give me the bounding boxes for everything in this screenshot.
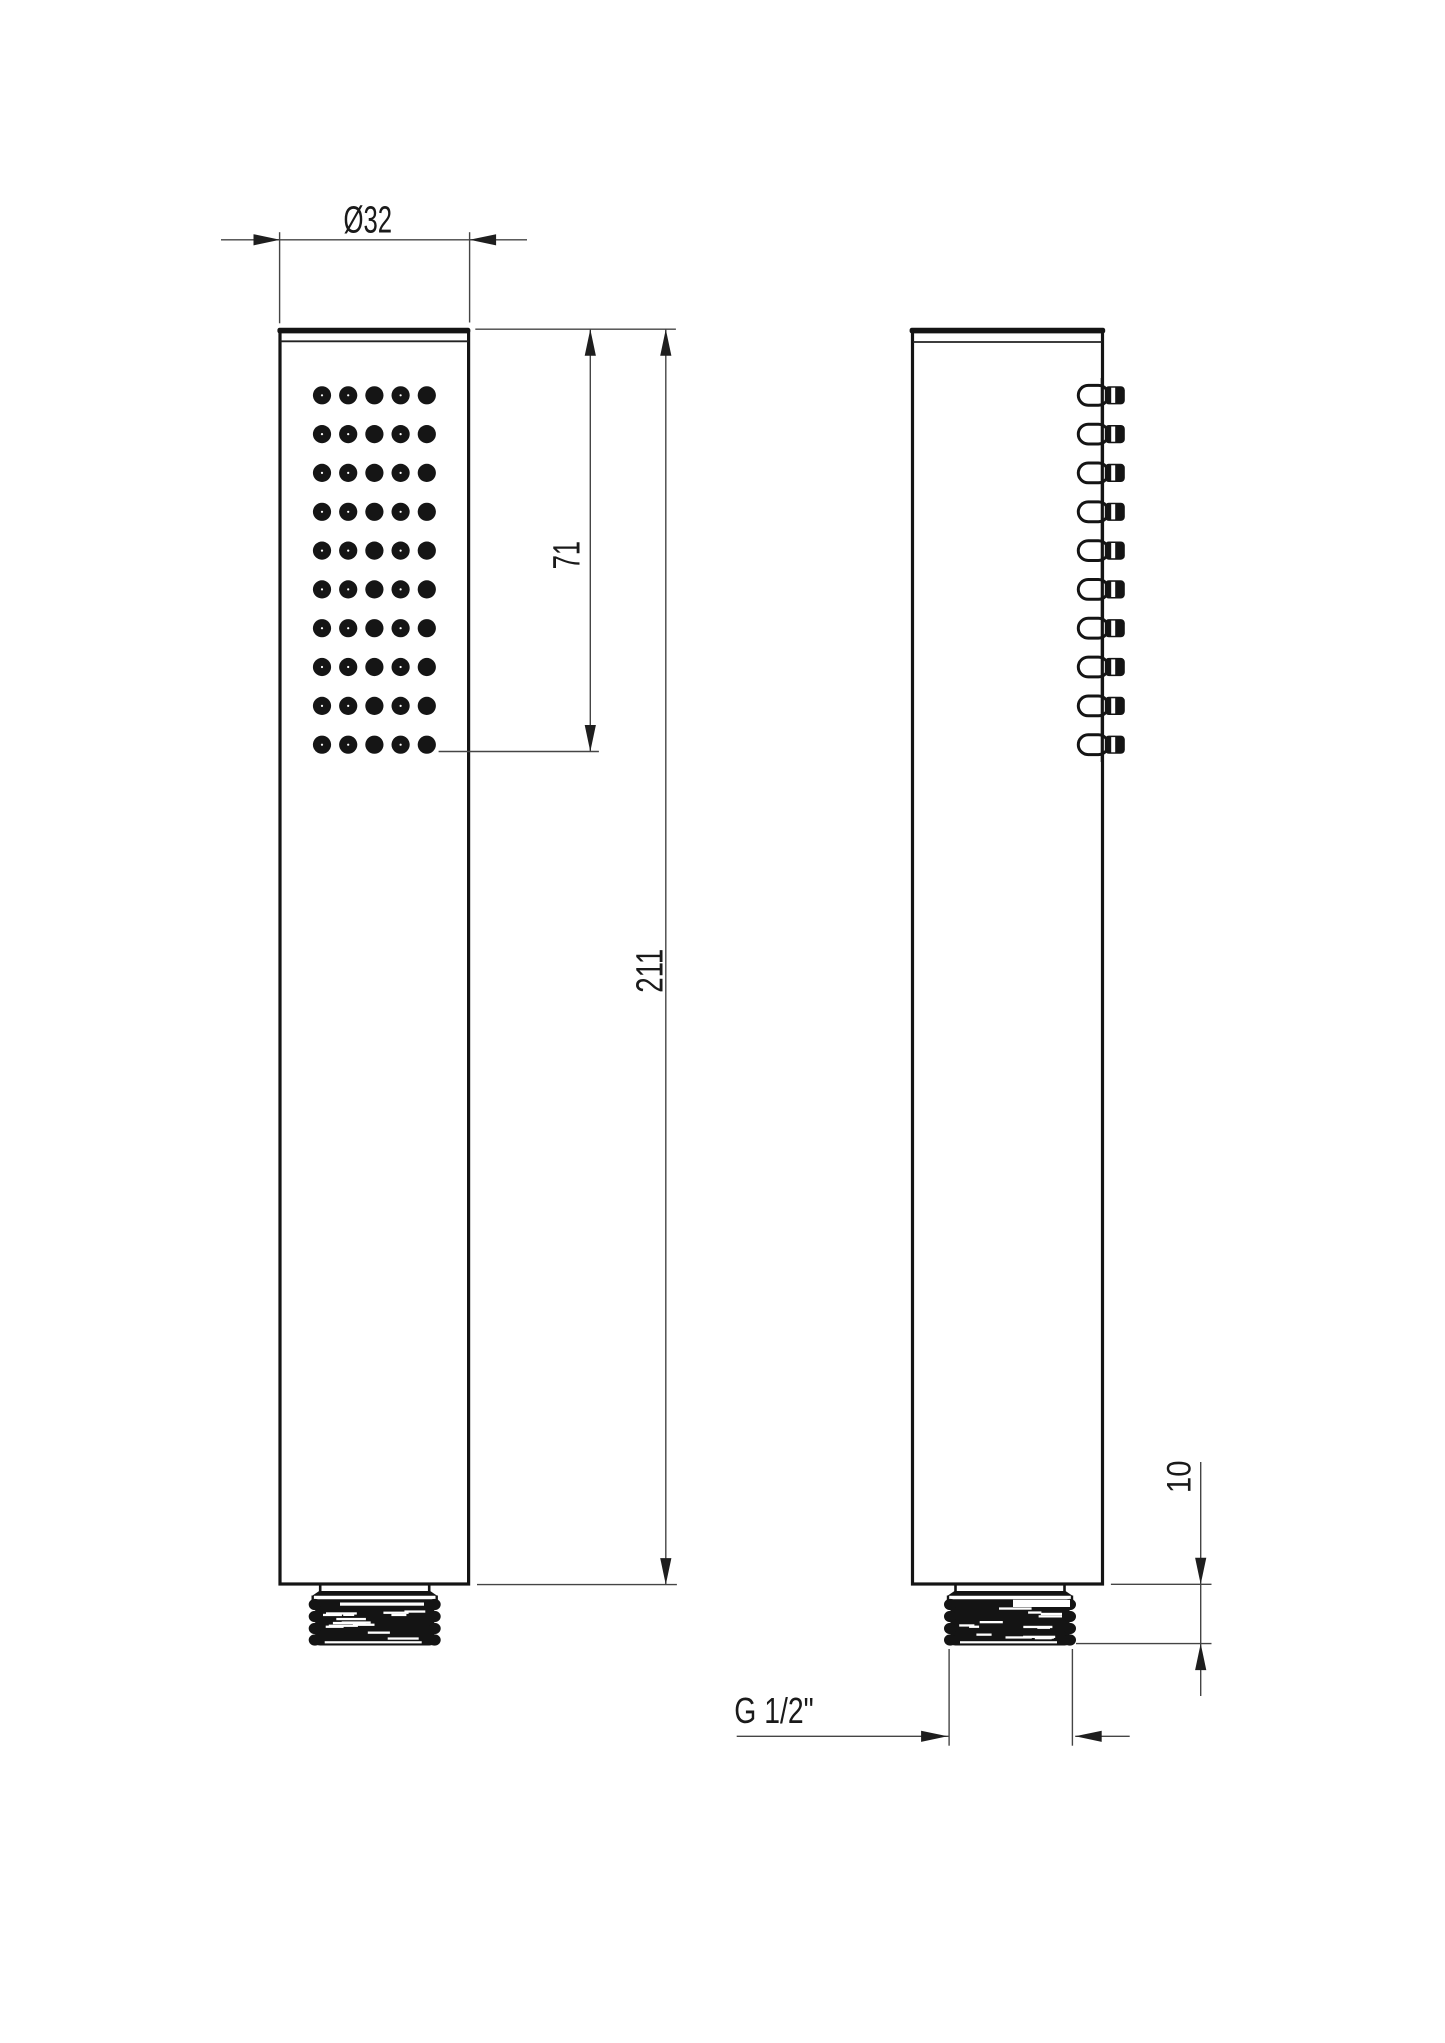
svg-text:G 1/2": G 1/2" <box>734 1690 813 1731</box>
svg-text:211: 211 <box>630 949 672 993</box>
svg-text:Ø32: Ø32 <box>344 200 393 242</box>
svg-text:71: 71 <box>546 541 588 569</box>
svg-text:10: 10 <box>1161 1461 1199 1494</box>
